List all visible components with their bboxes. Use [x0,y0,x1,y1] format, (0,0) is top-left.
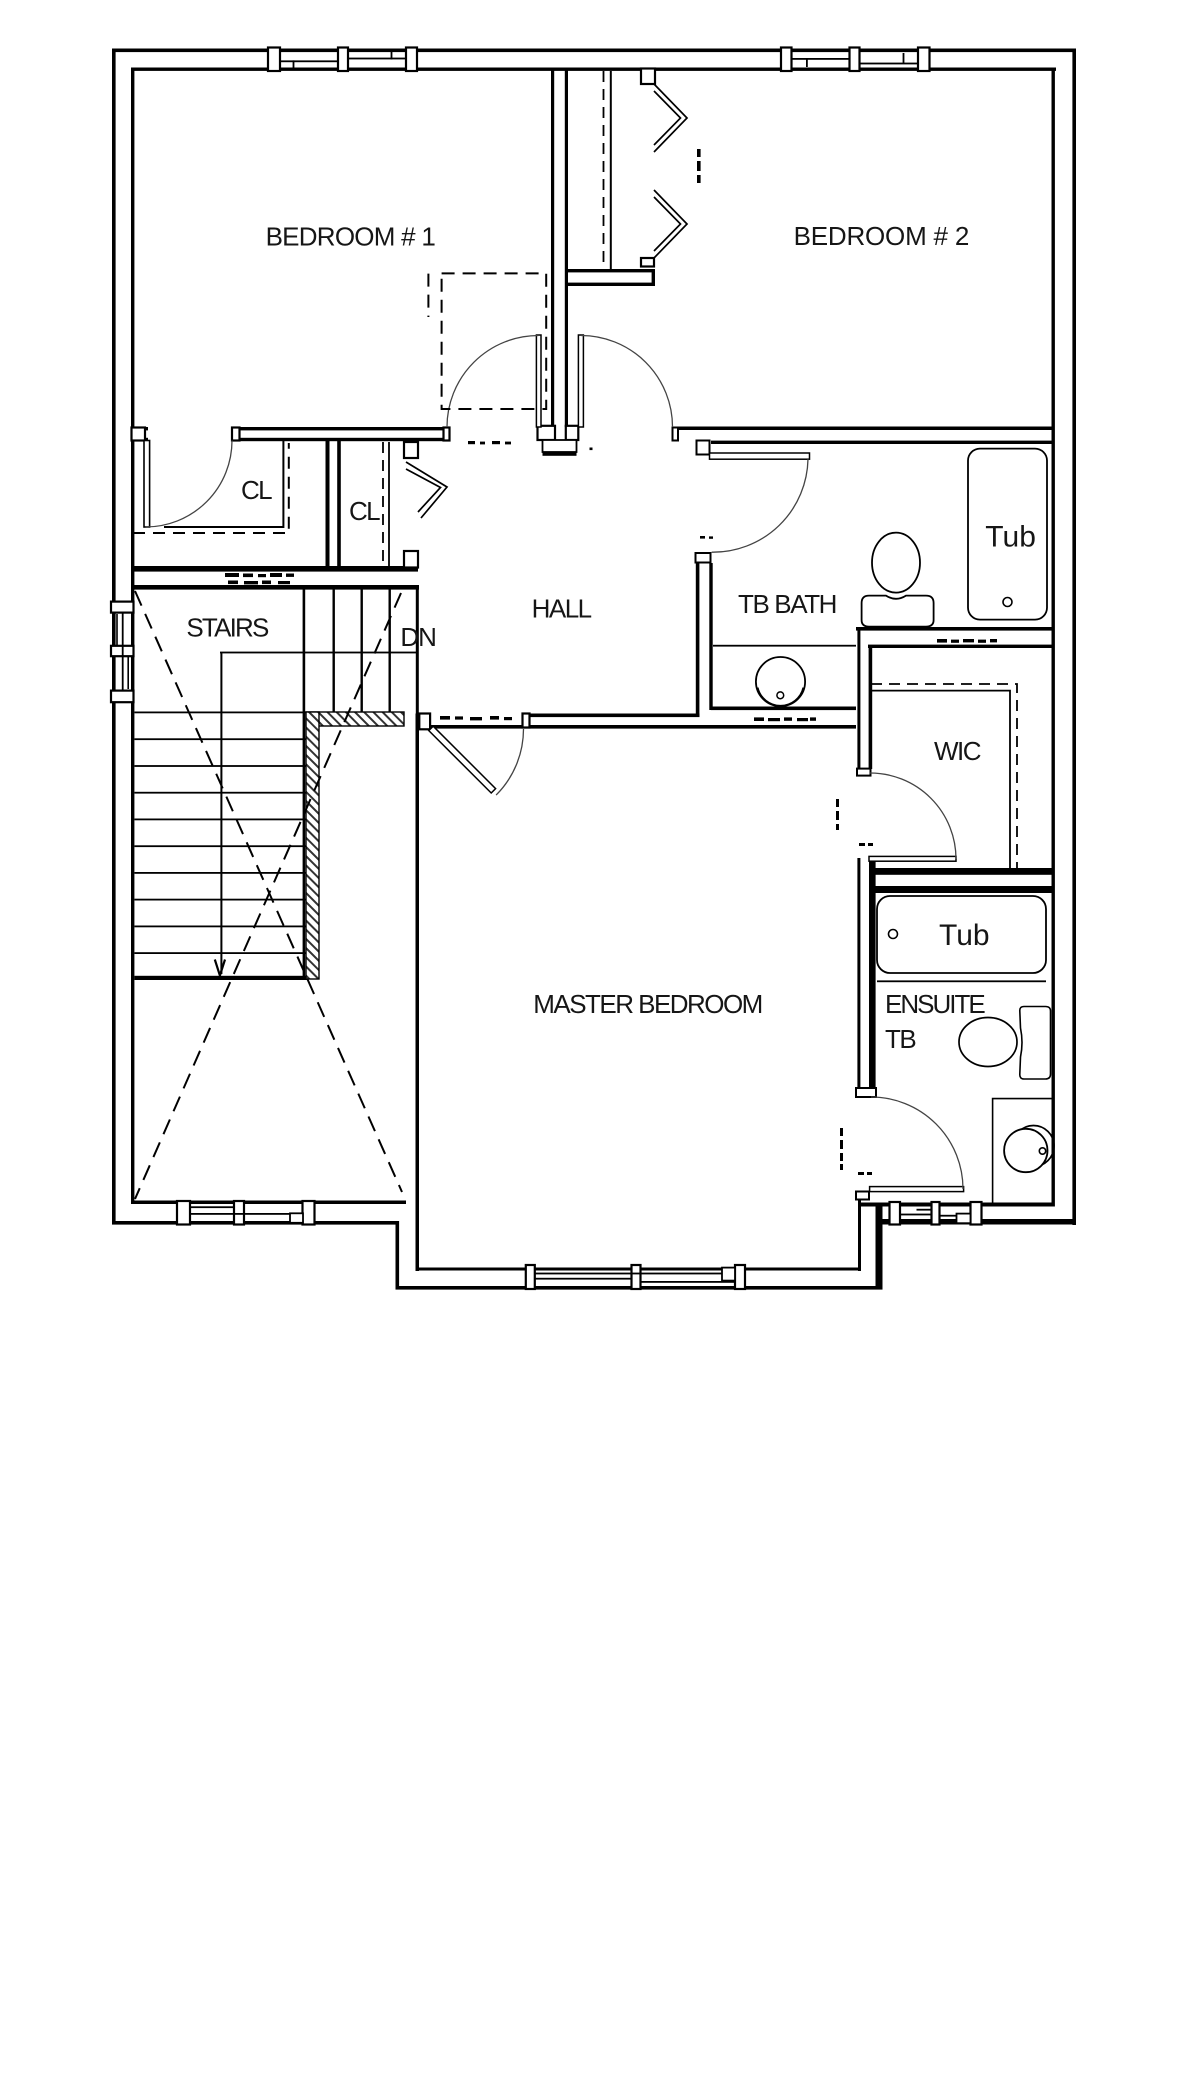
svg-text:HALL: HALL [532,593,592,623]
svg-text:CL: CL [241,475,272,505]
svg-text:TB BATH: TB BATH [738,589,836,619]
svg-text:CL: CL [349,496,380,526]
svg-text:MASTER BEDROOM: MASTER BEDROOM [533,989,762,1019]
svg-text:Tub: Tub [939,919,990,952]
svg-text:TB: TB [885,1024,915,1054]
svg-text:Tub: Tub [985,521,1036,554]
svg-text:DN: DN [400,622,436,652]
svg-text:BEDROOM # 2: BEDROOM # 2 [794,221,970,251]
svg-text:ENSUITE: ENSUITE [885,989,985,1019]
svg-text:BEDROOM # 1: BEDROOM # 1 [266,221,436,251]
svg-text:STAIRS: STAIRS [186,613,269,643]
svg-text:WIC: WIC [934,736,981,766]
